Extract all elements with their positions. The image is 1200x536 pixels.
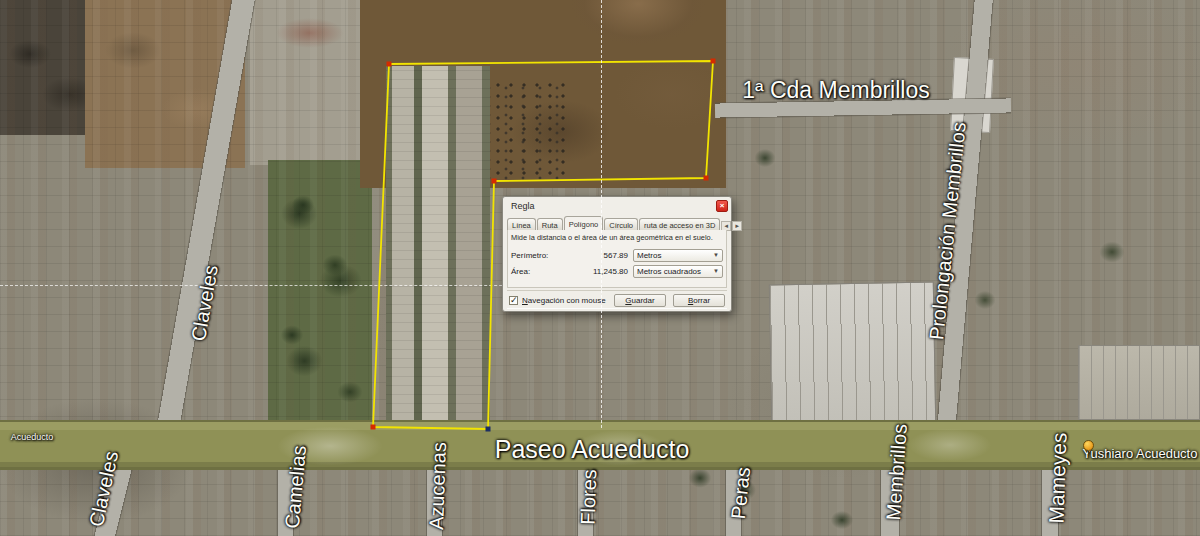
chevron-down-icon: ▼	[713, 268, 719, 274]
clear-button[interactable]: Borrar	[673, 294, 725, 307]
crosshair-vertical-dashed-line	[601, 0, 602, 428]
checkmark-icon: ✓	[510, 295, 518, 305]
area-row: Área: 11,245.80 Metros cuadrados ▼	[511, 263, 723, 279]
street-label-cda-membrillos: 1ª Cda Membrillos	[742, 77, 929, 104]
area-value: 11,245.80	[579, 267, 633, 276]
dialog-title: Regla	[511, 201, 535, 211]
perimeter-unit-select[interactable]: Metros ▼	[633, 249, 723, 262]
polygon-vertex[interactable]	[486, 427, 491, 432]
street-label-acueducto-small: Acueducto	[11, 432, 54, 442]
street-label-paseo-acueducto: Paseo Acueducto	[495, 435, 690, 464]
tab-scroll-right-icon[interactable]: ►	[732, 221, 742, 231]
dialog-footer: ✓ Navegación con mouse Guardar Borrar	[507, 290, 727, 309]
area-unit-value: Metros cuadrados	[637, 267, 701, 276]
chevron-down-icon: ▼	[713, 252, 719, 258]
polygon-vertex[interactable]	[387, 62, 392, 67]
street-label-mameyes: Mameyes	[1044, 432, 1071, 524]
close-icon[interactable]: ×	[716, 200, 728, 212]
ruler-dialog: Regla × Línea Ruta Polígono Círculo ruta…	[502, 196, 732, 312]
tab-poligono[interactable]: Polígono	[564, 216, 604, 231]
ruler-tab-bar: Línea Ruta Polígono Círculo ruta de acce…	[507, 216, 727, 231]
street-label-flores: Flores	[577, 469, 602, 525]
perimeter-label: Perímetro:	[511, 251, 548, 260]
tool-description: Mide la distancia o el área de un área g…	[511, 233, 723, 242]
area-unit-select[interactable]: Metros cuadrados ▼	[633, 265, 723, 278]
polygon-vertex[interactable]	[711, 59, 716, 64]
mouse-navigation-label: Navegación con mouse	[522, 296, 606, 305]
map-canvas[interactable]: Paseo Acueducto Acueducto 1ª Cda Membril…	[0, 0, 1200, 536]
area-label: Área:	[511, 267, 530, 276]
mouse-navigation-checkbox[interactable]: ✓	[509, 296, 518, 305]
save-button[interactable]: Guardar	[614, 294, 666, 307]
perimeter-value: 567.89	[579, 251, 633, 260]
polygon-vertex[interactable]	[371, 425, 376, 430]
polygon-vertex[interactable]	[492, 179, 497, 184]
polygon-vertex[interactable]	[704, 176, 709, 181]
street-label-azucenas: Azucenas	[425, 442, 451, 531]
placemark-label-yushiaro-acueducto[interactable]: Yushiaro Acueducto	[1083, 446, 1198, 461]
placemark-pushpin-icon[interactable]	[1083, 440, 1094, 451]
perimeter-unit-value: Metros	[637, 251, 661, 260]
perimeter-row: Perímetro: 567.89 Metros ▼	[511, 247, 723, 263]
ruler-tab-page: Mide la distancia o el área de un área g…	[507, 230, 727, 288]
